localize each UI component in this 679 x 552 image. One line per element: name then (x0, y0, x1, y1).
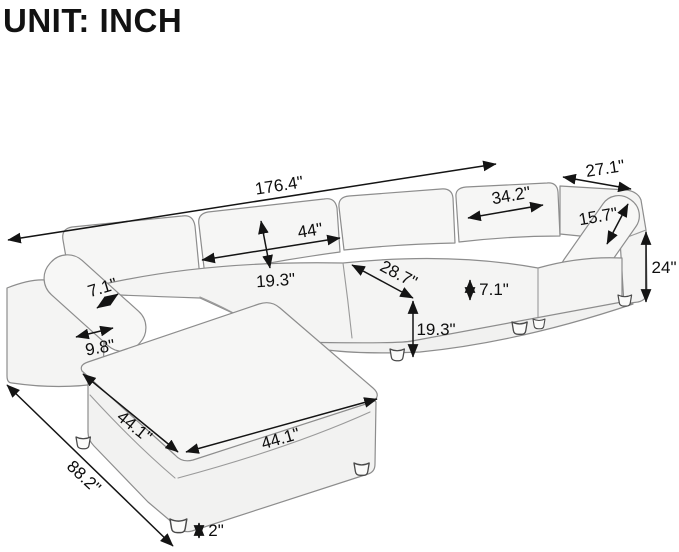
dim-label-seat-height: 19.3" (416, 320, 455, 339)
dim-label-overall-height: 24" (652, 258, 677, 277)
sofa-leg (354, 463, 369, 475)
sofa-leg (533, 319, 545, 329)
dim-label-seat-cushion-width: 44" (296, 219, 324, 242)
dim-label-seat-cushion-depth: 19.3" (255, 270, 295, 292)
sofa-illustration (7, 183, 647, 533)
sofa-leg (512, 322, 527, 334)
sofa-leg (618, 295, 632, 306)
sofa-dimension-drawing: 176.4" 27.1" 34.2" 15.7" 24" 44" 19.3" 2… (0, 0, 679, 552)
dim-label-arm-section-depth: 27.1" (584, 156, 626, 181)
back-cushion-3 (339, 189, 455, 250)
product-dimension-image: UNIT: INCH (0, 0, 679, 552)
sofa-leg (170, 519, 187, 533)
sofa-leg (390, 349, 404, 361)
dim-label-overall-depth: 88.2" (63, 457, 105, 498)
dim-label-seat-cushion-thickness: 7.1" (479, 280, 509, 299)
dim-label-leg-height: 2" (208, 521, 224, 540)
sofa-leg (76, 437, 90, 449)
